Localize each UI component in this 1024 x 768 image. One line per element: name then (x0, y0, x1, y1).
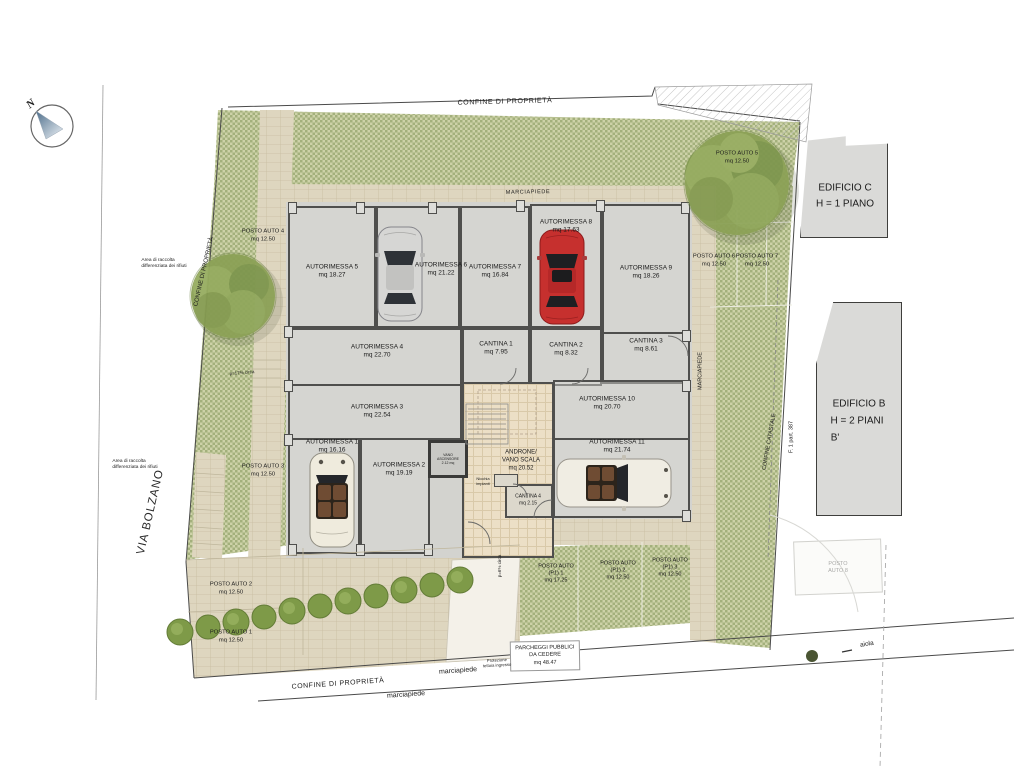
label-autorimessa-1: AUTORIMESSA 1mq 16.16 (306, 439, 358, 456)
sidewalk-label-right: MARCIAPIEDE (697, 352, 704, 390)
label-posto-auto-8: POSTOAUTO 8 (828, 561, 848, 575)
label-cantina-3: CANTINA 3mq 8.61 (629, 338, 663, 355)
edificio-b-height: H = 2 PIANI (830, 415, 883, 428)
label-autorimessa-2: AUTORIMESSA 2mq 19.19 (373, 462, 425, 479)
site-plan: CONFINE DI PROPRIETÀ CONFINE DI PROPRIET… (0, 0, 1024, 768)
door-arcs (468, 336, 688, 544)
staircase (466, 390, 536, 444)
label-posto-auto-7: POSTO AUTO 7mq 12.50 (736, 253, 778, 268)
label-canopy: Protezionetettoia ingresso (483, 657, 512, 669)
edificio-b-name: EDIFICIO B (833, 398, 886, 411)
label-autorimessa-6: AUTORIMESSA 6mq 21.22 (415, 262, 467, 279)
label-posto-auto-2: POSTO AUTO 2mq 12.50 (210, 581, 252, 596)
label-posto-auto-p1-1: POSTO AUTO(P1) 1mq 17.25 (538, 563, 574, 584)
car-convertible-cream (310, 453, 354, 547)
label-autorimessa-7: AUTORIMESSA 7mq 16.84 (469, 264, 521, 281)
label-autorimessa-5: AUTORIMESSA 5mq 18.27 (306, 264, 358, 281)
hedge-bushes (167, 567, 818, 662)
label-nicchia-impianti: Nicchiaimpianti (476, 476, 490, 486)
label-waste-area-2: Area di raccoltadifferenziata dei rifiut… (112, 459, 157, 471)
public-parking-box: PARCHEGGI PUBBLICIDA CEDEREmq 48.47 (510, 640, 581, 671)
aiola-tick (842, 650, 852, 652)
label-posto-auto-6: POSTO AUTO 6mq 12.50 (693, 253, 735, 268)
label-cantina-4: CANTINA 4mq 2.15 (515, 494, 541, 507)
label-autorimessa-8: AUTORIMESSA 8mq 17.63 (540, 219, 592, 236)
car-red (537, 230, 587, 324)
bush-icon (806, 650, 818, 662)
parcel-label: F. 1 part. 387 (788, 421, 795, 453)
label-entry-slope: p=6% circa (497, 555, 503, 577)
label-waste-area-1: Area di raccoltadifferenziata dei rifiut… (141, 258, 186, 270)
label-androne: ANDRONE/VANO SCALAmq 20.52 (502, 449, 540, 472)
dashed-line-right (880, 545, 886, 768)
edificio-c-height: H = 1 PIANO (816, 198, 874, 211)
label-posto-auto-p1-2: POSTO AUTO(P1) 2mq 12.50 (600, 560, 636, 581)
car-convertible-white (557, 455, 671, 511)
label-cantina-1: CANTINA 1mq 7.95 (479, 341, 513, 358)
label-autorimessa-10: AUTORIMESSA 10mq 20.70 (579, 396, 635, 413)
label-autorimessa-3: AUTORIMESSA 3mq 22.54 (351, 404, 403, 421)
tree-icon (684, 130, 799, 245)
label-vano-ascensore: VANO ASCENSORE2.12 mq (432, 453, 464, 465)
label-cantina-2: CANTINA 2mq 8.32 (549, 342, 583, 359)
label-autorimessa-4: AUTORIMESSA 4mq 22.70 (351, 344, 403, 361)
label-posto-auto-3: POSTO AUTO 3mq 12.50 (242, 463, 284, 478)
road-edge-left (96, 85, 103, 700)
label-posto-auto-4: POSTO AUTO 4mq 12.50 (242, 228, 284, 243)
label-autorimessa-11: AUTORIMESSA 11mq 21.74 (589, 439, 644, 456)
label-posto-auto-p1-3: POSTO AUTO(P1) 3mq 12.50 (652, 557, 688, 578)
label-posto-auto-1: POSTO AUTO 1mq 12.50 (210, 629, 252, 644)
label-posto-auto-5: POSTO AUTO 5mq 12.50 (716, 150, 758, 165)
edificio-b-note: B' (831, 432, 840, 445)
label-autorimessa-9: AUTORIMESSA 9mq 18.26 (620, 265, 672, 282)
sidewalk-label-top: MARCIAPIEDE (506, 189, 551, 197)
compass-icon (31, 105, 73, 147)
edificio-c-name: EDIFICIO C (818, 182, 871, 195)
